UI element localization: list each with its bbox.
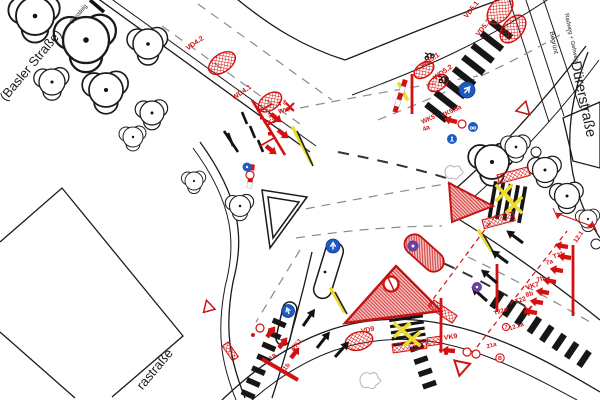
red-hatch-strip: [222, 342, 238, 361]
tree-icon: [119, 126, 146, 151]
label-21a: 21a: [486, 341, 498, 350]
stop-line: [262, 359, 298, 380]
tree-icon: [135, 100, 167, 130]
shrub-icon: [360, 373, 381, 389]
red-circle-icon: [458, 120, 466, 128]
tree-icon: [550, 182, 584, 213]
yield-sign: [452, 360, 471, 377]
traffic-signal-plan: B 7 (Basler Straße) Bussteig rastraße Dü…: [0, 0, 600, 400]
red-refuge-island: [400, 230, 448, 276]
tree-icon: [575, 209, 599, 232]
building-edge: [0, 332, 75, 398]
purple-sign: [408, 241, 419, 252]
shrub-icon: [445, 166, 463, 180]
label-wk5: WK5: [420, 113, 436, 126]
red-triangle-island-east: [449, 183, 493, 222]
label-122a: 12.2a: [509, 322, 526, 333]
loop-vd42: [205, 47, 240, 79]
signal-arrow: [549, 264, 564, 275]
purple-sign: [472, 282, 482, 292]
label-vk9-n: 9: [438, 348, 443, 356]
label-vd9: VD9: [360, 326, 375, 336]
red-circle-icon: [472, 350, 480, 358]
red-circle-icon: [463, 348, 471, 356]
label-vk1: VK1: [290, 338, 304, 353]
warning-triangle: [201, 299, 215, 313]
label-121: 12.1: [572, 230, 585, 245]
street-rastrasse: rastraße: [133, 346, 176, 393]
red-triangle-island-south: [345, 266, 441, 323]
tree-icon: [34, 68, 69, 101]
signal-arrow: [441, 345, 455, 355]
blue-signal: [243, 163, 252, 172]
red-dot: [251, 333, 255, 337]
label-begruent: Begrünt: [548, 31, 560, 55]
red-circle-icon: [246, 171, 254, 179]
label-radweg-gehweg: Radweg + Gehweg: [563, 13, 579, 63]
label-8b: 8b: [525, 290, 534, 299]
triangle-island-inner: [268, 197, 299, 238]
tree-icon: [127, 28, 168, 66]
tree-icon: [181, 171, 205, 194]
label-vd51: VD5.1: [463, 0, 481, 20]
tree-icon: [531, 147, 541, 157]
label-wd41: WD4.1: [231, 84, 253, 102]
blue-arrow-sign: [326, 239, 340, 253]
tree-icon: [528, 156, 562, 187]
blue-pedestrian-signal: [447, 134, 457, 144]
warning-triangle: [516, 99, 533, 114]
circled-b-label: B: [498, 356, 502, 362]
street-duerer: Dürerstraße: [567, 60, 599, 139]
tree-icon: [225, 194, 253, 220]
circled-7-label: 7: [505, 325, 508, 331]
tree-icon: [82, 71, 128, 114]
red-dot: [444, 351, 448, 355]
signal-arrow: [263, 142, 279, 158]
circled-b-icon: B: [496, 354, 504, 362]
blue-bike-signal: [468, 122, 478, 132]
red-circle-icon: [256, 324, 264, 332]
tree-icon: [591, 239, 600, 249]
tree-icon: [54, 15, 116, 72]
label-vk9: VK9: [443, 333, 458, 342]
